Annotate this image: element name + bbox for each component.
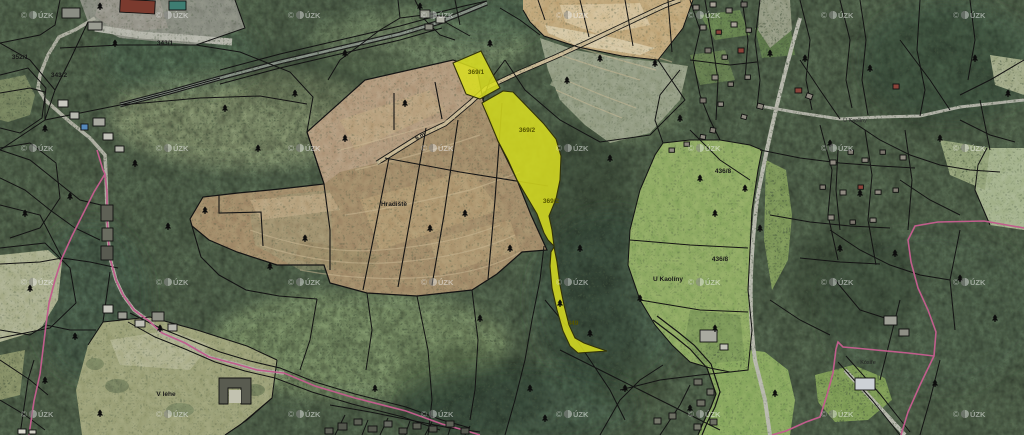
svg-text:©: ©: [556, 144, 562, 153]
svg-text:ÚZK: ÚZK: [305, 410, 321, 419]
svg-text:U Kaolíny: U Kaolíny: [843, 118, 867, 124]
svg-text:©: ©: [821, 410, 827, 419]
svg-text:©: ©: [421, 410, 427, 419]
svg-text:©: ©: [288, 410, 294, 419]
svg-text:©: ©: [821, 278, 827, 287]
svg-text:U Kaolíny: U Kaolíny: [653, 276, 683, 283]
svg-text:©: ©: [688, 11, 694, 20]
svg-text:©: ©: [21, 11, 27, 20]
svg-text:©: ©: [21, 410, 27, 419]
svg-text:©: ©: [953, 144, 959, 153]
svg-text:©: ©: [156, 144, 162, 153]
svg-text:©: ©: [156, 11, 162, 20]
svg-text:ÚZK: ÚZK: [173, 410, 189, 419]
svg-text:ÚZK: ÚZK: [38, 144, 54, 153]
svg-text:ÚZK: ÚZK: [438, 11, 454, 20]
svg-text:ÚZK: ÚZK: [970, 410, 986, 419]
svg-text:©: ©: [156, 410, 162, 419]
svg-text:436/8: 436/8: [715, 168, 732, 175]
svg-text:©: ©: [556, 410, 562, 419]
svg-text:ÚZK: ÚZK: [705, 11, 721, 20]
svg-text:ÚZK: ÚZK: [438, 410, 454, 419]
svg-text:©: ©: [156, 278, 162, 287]
svg-text:©: ©: [288, 11, 294, 20]
svg-text:ÚZK: ÚZK: [970, 11, 986, 20]
svg-text:ÚZK: ÚZK: [173, 144, 189, 153]
svg-text:ÚZK: ÚZK: [970, 144, 986, 153]
svg-text:ÚZK: ÚZK: [705, 278, 721, 287]
svg-text:©: ©: [688, 410, 694, 419]
svg-text:©: ©: [556, 278, 562, 287]
svg-text:©: ©: [421, 11, 427, 20]
svg-text:ÚZK: ÚZK: [838, 410, 854, 419]
svg-text:©: ©: [556, 11, 562, 20]
svg-text:©: ©: [288, 144, 294, 153]
svg-text:V lehe: V lehe: [156, 391, 176, 398]
svg-text:ÚZK: ÚZK: [38, 410, 54, 419]
svg-text:369/2: 369/2: [519, 127, 536, 134]
svg-text:©: ©: [421, 278, 427, 287]
svg-text:ÚZK: ÚZK: [838, 278, 854, 287]
svg-text:ÚZK: ÚZK: [173, 278, 189, 287]
svg-text:©: ©: [821, 144, 827, 153]
svg-text:ÚZK: ÚZK: [173, 11, 189, 20]
svg-text:352/1: 352/1: [12, 54, 29, 61]
svg-text:©: ©: [688, 144, 694, 153]
svg-text:343/2: 343/2: [51, 72, 68, 79]
svg-text:369/1: 369/1: [468, 69, 485, 76]
svg-text:ÚZK: ÚZK: [305, 144, 321, 153]
svg-text:ÚZK: ÚZK: [838, 11, 854, 20]
svg-text:436/8: 436/8: [712, 256, 729, 263]
svg-text:©: ©: [421, 144, 427, 153]
svg-text:349: 349: [568, 320, 579, 327]
svg-text:ÚZK: ÚZK: [438, 278, 454, 287]
svg-text:ÚZK: ÚZK: [970, 278, 986, 287]
svg-text:ÚZK: ÚZK: [573, 11, 589, 20]
svg-text:©: ©: [821, 11, 827, 20]
svg-text:©: ©: [21, 278, 27, 287]
svg-text:ÚZK: ÚZK: [38, 11, 54, 20]
svg-text:ÚZK: ÚZK: [705, 144, 721, 153]
svg-text:ÚZK: ÚZK: [573, 278, 589, 287]
svg-text:Hradiště: Hradiště: [381, 201, 407, 208]
svg-text:ÚZK: ÚZK: [573, 410, 589, 419]
svg-text:ÚZK: ÚZK: [573, 144, 589, 153]
svg-text:ÚZK: ÚZK: [305, 11, 321, 20]
svg-text:ÚZK: ÚZK: [838, 144, 854, 153]
svg-text:©: ©: [688, 278, 694, 287]
svg-text:ÚZK: ÚZK: [38, 278, 54, 287]
svg-text:ÚZK: ÚZK: [438, 144, 454, 153]
svg-text:©: ©: [21, 144, 27, 153]
svg-text:Kósiře: Kósiře: [860, 360, 876, 366]
svg-text:ÚZK: ÚZK: [305, 278, 321, 287]
svg-text:©: ©: [288, 278, 294, 287]
svg-text:ÚZK: ÚZK: [705, 410, 721, 419]
svg-text:©: ©: [953, 11, 959, 20]
svg-text:©: ©: [953, 278, 959, 287]
svg-text:369/2: 369/2: [543, 198, 560, 205]
svg-text:©: ©: [953, 410, 959, 419]
svg-text:343/1: 343/1: [157, 40, 174, 47]
